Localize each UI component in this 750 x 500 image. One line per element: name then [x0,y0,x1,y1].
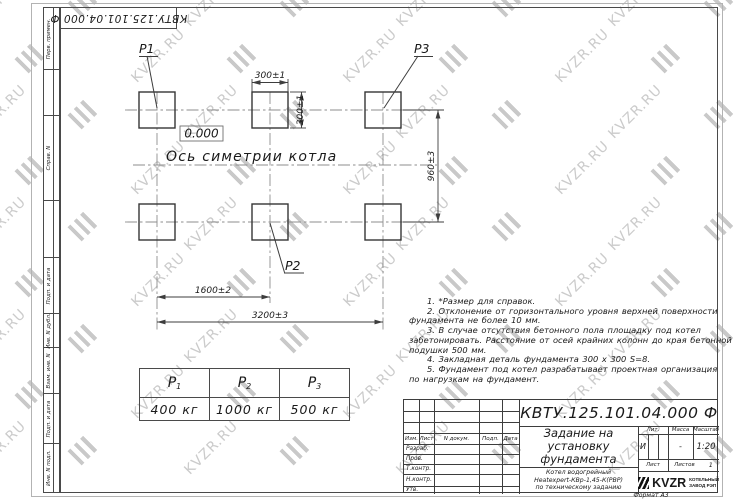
rev-col-list: Лист [419,433,434,444]
mass-value: - [668,434,693,459]
scale-label: Масштаб [693,426,719,434]
rev-col-ndocum: N докум. [434,433,479,444]
pad-label-p1: P1 [139,41,155,56]
elevation-mark-value: 0.000 [184,127,219,141]
sheet-label: Лист [638,459,668,471]
factory-logo: KVZR КОТЕЛЬНЫЙ ЗАВОД РЭП [638,471,719,494]
logo-caption: КОТЕЛЬНЫЙ ЗАВОД РЭП [689,477,719,488]
drawing-title: Задание на установку фундамента [519,426,638,467]
leader-p2 [270,223,285,273]
grid-line [404,486,519,487]
load-table: Р1 Р2 Р3 400 кг 1000 кг 500 кг [139,368,350,421]
dim-text-pad-height: 300±1 [296,95,306,125]
format-label: Формат А3 [601,492,701,499]
role-prov: Пров. [406,456,423,462]
dim-text-total-span: 3200±3 [252,311,288,321]
grid-line [434,400,435,494]
grid-line [404,411,519,412]
pad-label-p3: P3 [414,41,430,56]
grid-line [658,434,659,459]
logo-caption-line: КОТЕЛЬНЫЙ [689,477,719,482]
lit-label: Лит. [638,426,668,434]
role-nkontr: Н.контр. [406,477,432,483]
logo-caption-line: ЗАВОД РЭП [689,483,719,488]
load-value-p2: 1000 кг [210,398,280,421]
sheets-label: Листов [674,462,695,468]
load-table-header-row: Р1 Р2 Р3 [140,369,350,398]
technical-notes: 1. *Размер для справок. 2. Отклонение от… [409,297,721,384]
grid-line [479,400,480,494]
dim-text-col-spacing: 1600±2 [195,286,231,296]
note-line: по нагрузкам на фундамент. [409,375,721,385]
title-block: Изм. Лист N докум. Подп. Дата Разраб. Пр… [403,399,718,493]
role-razrab: Разраб. [406,446,429,452]
kvzr-logo-icon [638,477,649,489]
title-line: фундамента [540,453,616,466]
role-utv: Утв. [406,487,418,493]
doc-number: КВТУ.125.101.04.000 Ф [519,400,719,426]
grid-line [648,434,649,459]
sheets-cell: Листов 1 [668,459,719,471]
subtitle-line: Котел водогрейный [546,469,611,477]
load-header-p1: Р1 [140,369,210,398]
drawing-subtitle: Котел водогрейный Heatexpert-КВр-1,45-К(… [519,467,638,494]
sheets-value: 1 [709,461,713,469]
grid-line [502,400,503,494]
symmetry-axis-label: Ось симетрии котла [166,149,337,165]
grid-line [404,422,519,423]
pad-label-p2: P2 [285,258,301,273]
rev-col-podp: Подп. [479,433,502,444]
subtitle-line: Heatexpert-КВр-1,45-К(РВР) [534,477,623,485]
logo-name: KVZR [652,476,686,490]
dim-text-pad-width: 300±1 [255,71,285,81]
rev-col-izm: Изм. [404,433,419,444]
lit-value: И [638,434,648,459]
load-table-value-row: 400 кг 1000 кг 500 кг [140,398,350,421]
mass-label: Масса [668,426,693,434]
dim-text-row-spacing: 960±3 [427,151,437,182]
load-value-p1: 400 кг [140,398,210,421]
load-header-p2: Р2 [210,369,280,398]
role-tkontr: Т.контр. [406,466,431,472]
leader-p1 [147,56,157,108]
rev-col-data: Дата [502,433,519,444]
scale-value: 1:20 [693,434,719,459]
load-header-p3: Р3 [280,369,350,398]
load-value-p3: 500 кг [280,398,350,421]
grid-line [404,474,519,475]
